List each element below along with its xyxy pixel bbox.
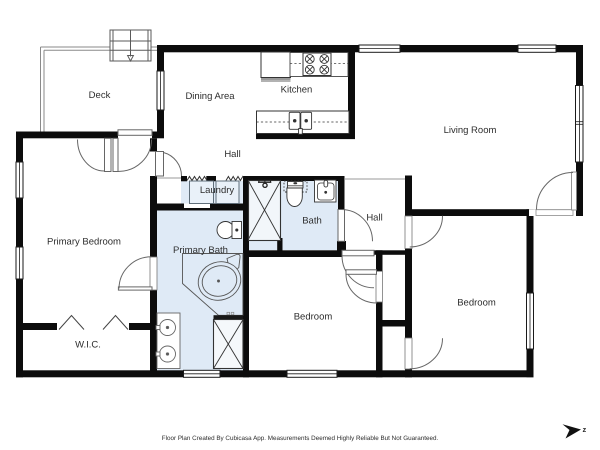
svg-text:W.I.C.: W.I.C. <box>75 340 101 351</box>
svg-text:Kitchen: Kitchen <box>281 85 313 96</box>
svg-text:Laundry: Laundry <box>200 185 235 196</box>
svg-text:Dining Area: Dining Area <box>185 91 235 102</box>
svg-text:Living Room: Living Room <box>444 125 497 136</box>
svg-text:Bedroom: Bedroom <box>294 312 333 323</box>
svg-text:z: z <box>583 425 587 434</box>
svg-text:Hall: Hall <box>224 149 240 160</box>
svg-text:Primary Bedroom: Primary Bedroom <box>47 237 121 248</box>
svg-text:Bath: Bath <box>302 216 322 227</box>
svg-text:Bedroom: Bedroom <box>457 298 496 309</box>
svg-text:Floor Plan Created By Cubicasa: Floor Plan Created By Cubicasa App. Meas… <box>162 435 439 442</box>
svg-text:Hall: Hall <box>366 213 382 224</box>
svg-text:Primary Bath: Primary Bath <box>173 245 228 256</box>
svg-text:Deck: Deck <box>89 90 111 101</box>
